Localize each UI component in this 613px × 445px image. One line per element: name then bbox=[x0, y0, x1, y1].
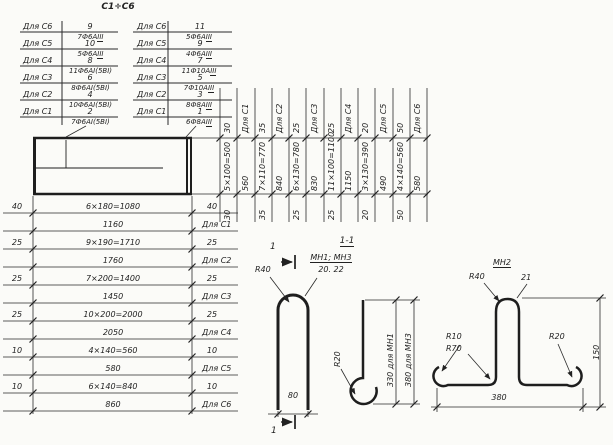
dim-label: Для С2 bbox=[202, 256, 231, 266]
radius-label: R40 bbox=[255, 265, 271, 275]
dim-margin: 25 bbox=[292, 123, 302, 133]
row-label: Для С4 bbox=[137, 56, 166, 66]
dim-value: 580 bbox=[38, 364, 188, 374]
dim-margin: 20 bbox=[361, 123, 371, 133]
dim-value: 80 bbox=[278, 391, 308, 401]
dim-margin: 25 bbox=[4, 274, 30, 284]
dim-value: 11×100=1100 bbox=[327, 132, 337, 191]
section-dims bbox=[268, 255, 606, 429]
dim-value: 6×130=780 bbox=[292, 142, 302, 191]
row-label: Для С2 bbox=[23, 90, 52, 100]
dim-margin: 25 bbox=[196, 310, 228, 320]
dim-margin: 10 bbox=[4, 346, 30, 356]
row-label: Для С4 bbox=[23, 56, 52, 66]
position-number: 11 bbox=[172, 22, 228, 32]
position-number: 4 bbox=[64, 90, 116, 100]
position-number: 21 bbox=[521, 273, 531, 283]
bar-spec: 6Ф8АIII bbox=[168, 119, 230, 126]
dim-margin: 25 bbox=[196, 238, 228, 248]
row-label: Для С5 bbox=[137, 39, 166, 49]
dim-value: 380 для МН3 bbox=[404, 333, 414, 387]
dim-label: Для С4 bbox=[202, 328, 231, 338]
dim-margin: 10 bbox=[196, 346, 228, 356]
dim-label: Для С5 bbox=[202, 364, 231, 374]
drawing-title: С1÷С6 bbox=[88, 2, 148, 12]
radius-label: R20 bbox=[333, 351, 343, 367]
dim-value: 490 bbox=[379, 176, 389, 191]
dim-margin: 30 bbox=[223, 123, 233, 133]
dim-value: 6×180=1080 bbox=[38, 202, 188, 212]
position-number: 3 bbox=[172, 90, 228, 100]
position-numbers: 20. 22 bbox=[303, 265, 359, 275]
dim-value: 9×190=1710 bbox=[38, 238, 188, 248]
dim-label: Для С2 bbox=[275, 104, 285, 133]
dim-value: 580 bbox=[413, 176, 423, 191]
position-number: 9 bbox=[64, 22, 116, 32]
dim-margin: 25 bbox=[4, 310, 30, 320]
dim-label: Для С5 bbox=[379, 104, 389, 133]
dim-margin: 10 bbox=[196, 382, 228, 392]
dim-value: 7×200=1400 bbox=[38, 274, 188, 284]
dim-label: Для С3 bbox=[310, 104, 320, 133]
mesh-plan bbox=[33, 138, 192, 194]
radius-label: R40 bbox=[469, 272, 485, 282]
position-number: 7 bbox=[172, 56, 228, 66]
position-number: 2 bbox=[64, 107, 116, 117]
dim-margin: 35 bbox=[258, 123, 268, 133]
dim-label: Для С1 bbox=[202, 220, 231, 230]
dim-margin: 35 bbox=[258, 210, 268, 220]
row-label: Для С3 bbox=[137, 73, 166, 83]
dim-value: 1450 bbox=[38, 292, 188, 302]
dim-margin: 20 bbox=[361, 210, 371, 220]
row-label: Для С2 bbox=[137, 90, 166, 100]
dim-value: 150 bbox=[592, 345, 602, 360]
row-label: Для С6 bbox=[137, 22, 166, 32]
drawing-sheet: С1÷С6 Для С6 9 7Ф6АIII Для С5 10 5Ф6АIII… bbox=[0, 0, 613, 445]
radius-label: R20 bbox=[549, 332, 565, 342]
dim-value: 840 bbox=[275, 176, 285, 191]
dim-margin: 25 bbox=[196, 274, 228, 284]
dim-margin: 40 bbox=[196, 202, 228, 212]
position-number: 9 bbox=[172, 39, 228, 49]
dim-value: 1150 bbox=[344, 171, 354, 191]
dim-value: 4×140=560 bbox=[38, 346, 188, 356]
position-number: 1 bbox=[172, 107, 228, 117]
dim-value: 10×200=2000 bbox=[38, 310, 188, 320]
cut-mark-label: 1 bbox=[271, 426, 277, 436]
radius-label: R10 bbox=[446, 332, 462, 342]
dim-value: 560 bbox=[241, 176, 251, 191]
dim-label: Для С6 bbox=[202, 400, 231, 410]
dim-value: 1760 bbox=[38, 256, 188, 266]
row-label: Для С3 bbox=[23, 73, 52, 83]
dim-margin: 10 bbox=[4, 382, 30, 392]
mark-label: МН2 bbox=[487, 258, 517, 268]
position-number: 10 bbox=[64, 39, 116, 49]
radius-label: R70 bbox=[446, 344, 462, 354]
dim-value: 830 bbox=[310, 176, 320, 191]
dim-label: Для С4 bbox=[344, 104, 354, 133]
position-number: 6 bbox=[64, 73, 116, 83]
dim-margin: 50 bbox=[396, 123, 406, 133]
row-label: Для С5 bbox=[23, 39, 52, 49]
bar-spec: 7Ф6АI(5ВI) bbox=[62, 119, 119, 126]
dim-value: 7×110=770 bbox=[258, 142, 268, 191]
dim-value: 330 для МН1 bbox=[386, 333, 396, 387]
dim-value: 380 bbox=[484, 393, 514, 403]
row-label: Для С1 bbox=[137, 107, 166, 117]
dim-margin: 50 bbox=[396, 210, 406, 220]
dim-value: 4×140=560 bbox=[396, 142, 406, 191]
section-title: 1-1 bbox=[332, 236, 362, 246]
position-number: 8 bbox=[64, 56, 116, 66]
row-label: Для С6 bbox=[23, 22, 52, 32]
dim-value: 860 bbox=[38, 400, 188, 410]
dim-label: Для С3 bbox=[202, 292, 231, 302]
dim-value: 2050 bbox=[38, 328, 188, 338]
section-shapes bbox=[278, 295, 582, 410]
cut-mark-label: 1 bbox=[270, 242, 276, 252]
position-number: 5 bbox=[172, 73, 228, 83]
dim-value: 3×130=390 bbox=[361, 142, 371, 191]
dim-label: Для С1 bbox=[241, 104, 251, 133]
dim-margin: 25 bbox=[327, 210, 337, 220]
dim-label: Для С6 bbox=[413, 104, 423, 133]
mark-label: МН1; МН3 bbox=[303, 253, 359, 263]
dim-margin: 25 bbox=[292, 210, 302, 220]
dim-value: 6×140=840 bbox=[38, 382, 188, 392]
row-label: Для С1 bbox=[23, 107, 52, 117]
dim-value: 1160 bbox=[38, 220, 188, 230]
dim-margin: 25 bbox=[4, 238, 30, 248]
dim-margin: 40 bbox=[4, 202, 30, 212]
dim-value: 5×100=500 bbox=[223, 142, 233, 191]
